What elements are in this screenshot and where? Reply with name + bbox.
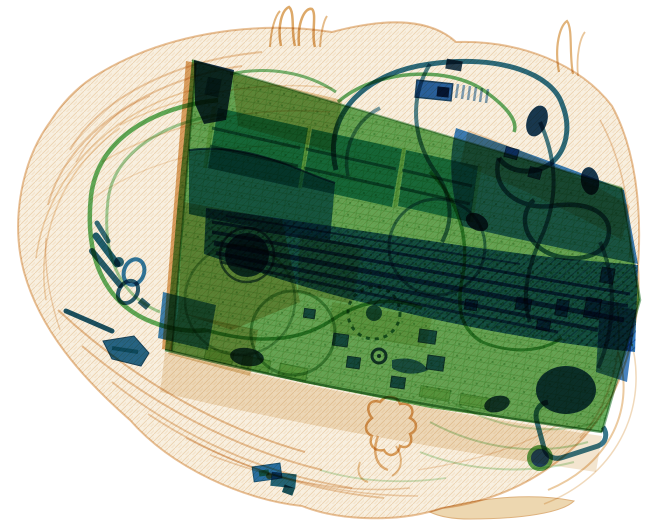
- xray-scan-image: [0, 0, 645, 528]
- motor-blob: [536, 366, 596, 414]
- buckle-part: [270, 472, 296, 489]
- chip: [536, 319, 551, 331]
- usb-plug-tip: [437, 86, 450, 97]
- zipper-squiggle: [577, 32, 585, 76]
- fan-dotted-hub: [366, 305, 382, 321]
- chip: [583, 297, 601, 319]
- chip: [426, 355, 445, 371]
- chip: [346, 356, 360, 369]
- xray-baggage-scan: [0, 0, 645, 528]
- fan-hub: [225, 233, 269, 277]
- chip: [418, 329, 437, 344]
- key-head: [114, 257, 124, 267]
- chip: [555, 299, 570, 317]
- chip: [515, 297, 532, 311]
- chip: [390, 376, 405, 389]
- chip: [332, 333, 349, 347]
- target-dot: [377, 354, 381, 358]
- blue-patch-right: [596, 302, 636, 382]
- chip: [303, 308, 315, 318]
- chip: [464, 299, 477, 311]
